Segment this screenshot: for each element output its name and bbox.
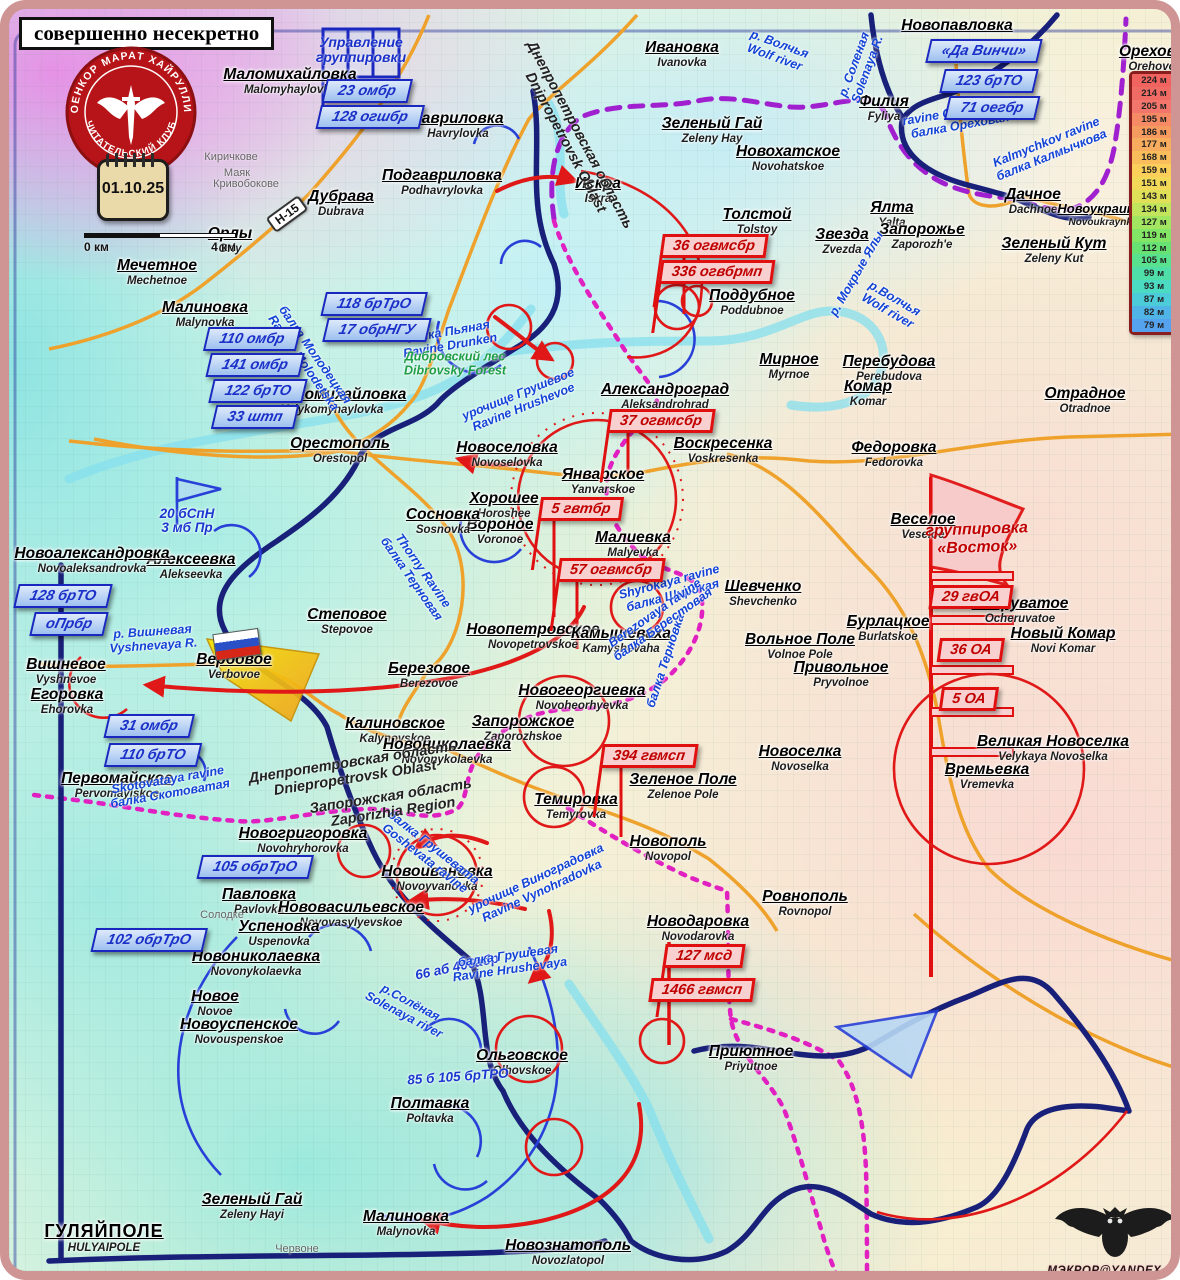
ukrainian-unit-label: 71 оегбр xyxy=(944,96,1040,120)
ukrainian-unit-label: 122 брТО xyxy=(208,379,308,403)
place-translit: Novouspenskoe xyxy=(180,1034,298,1046)
place-translit: Novoheorhyevka xyxy=(518,700,645,712)
place-label: СтеповоеStepovoe xyxy=(307,606,386,636)
elevation-legend-entry: 119 м xyxy=(1132,229,1176,242)
water-feature-label: р.СолёнаяSolenaya river xyxy=(363,977,451,1041)
place-label: МирноеMyrnoe xyxy=(759,351,818,381)
ukrainian-unit-label: 110 омбр xyxy=(203,327,301,351)
place-name: Комар xyxy=(844,378,892,395)
ukrainian-unit-label: 17 обрНГУ xyxy=(322,318,432,342)
elevation-legend-entry: 87 м xyxy=(1132,293,1176,306)
place-name: Ивановка xyxy=(645,39,719,56)
place-translit: Sosnovka xyxy=(406,524,480,536)
place-label: ПривольноеPryvolnoe xyxy=(794,659,889,689)
place-translit: Dachnoe xyxy=(1005,204,1061,216)
place-label: БурлацкоеBurlatskoe xyxy=(847,613,930,643)
place-label: НовоселкаNovoselka xyxy=(759,743,842,773)
place-name: Отрадное xyxy=(1045,385,1126,402)
place-label: ПоддубноеPoddubnoe xyxy=(709,287,795,317)
place-label: ПолтавкаPoltavka xyxy=(391,1095,470,1125)
grouping-line2: «Восток» xyxy=(926,537,1029,558)
calendar-spiral-icon xyxy=(106,153,160,167)
place-name: Филия xyxy=(859,93,909,110)
place-translit: Uspenovka xyxy=(238,936,319,948)
elevation-legend-entry: 112 м xyxy=(1132,242,1176,255)
place-name: Ялта xyxy=(870,199,913,216)
minor-place-label: Червоне xyxy=(275,1243,319,1255)
place-name: Новополь xyxy=(630,833,707,850)
place-translit: Shevchenko xyxy=(725,596,802,608)
russian-unit-label: 36 огвмсбр xyxy=(659,234,768,258)
elevation-legend-entry: 99 м xyxy=(1132,267,1176,280)
place-label: БерезовоеBerezovoe xyxy=(388,660,470,690)
place-name: ГУЛЯЙПОЛЕ xyxy=(44,1221,163,1241)
ukrainian-unit-label: 105 обрТрО xyxy=(196,855,313,879)
place-translit: Novopol xyxy=(630,851,707,863)
place-translit: Voskresenka xyxy=(674,453,773,465)
place-label: ВоскресенкаVoskresenka xyxy=(674,435,773,465)
water-feature-label: р. ВолчьяWolf river xyxy=(744,28,810,74)
place-translit: Novonykolaevka xyxy=(192,966,320,978)
elevation-legend-entry: 205 м xyxy=(1132,100,1176,113)
ukrainian-unit-label: 31 омбр xyxy=(103,714,194,738)
elevation-legend-entry: 186 м xyxy=(1132,126,1176,139)
elevation-legend-entry: 127 м xyxy=(1132,216,1176,229)
place-translit: Ehorovka xyxy=(31,704,104,716)
place-name: Запорожское xyxy=(472,713,574,730)
place-translit: Rovnopol xyxy=(762,906,848,918)
water-feature-label: р.ВолчьяWolf river xyxy=(859,279,922,331)
place-translit: Vremevka xyxy=(945,779,1030,791)
place-label: НоводаровкаNovodarovka xyxy=(647,913,749,943)
russian-unit-label: 36 ОА xyxy=(937,638,1006,662)
place-label: Зеленый ГайZeleny Hay xyxy=(662,115,763,145)
oblast-name-label: Днепропетровская областьDnipropetrovsk O… xyxy=(509,39,635,239)
russian-unit-label: 5 ОА xyxy=(939,687,1000,711)
place-translit: Poltavka xyxy=(391,1113,470,1125)
place-label: Зеленое ПолеZelenoe Pole xyxy=(629,771,736,801)
place-translit: Otradnoe xyxy=(1045,403,1126,415)
place-translit: Orestopol xyxy=(290,453,390,465)
elevation-legend-entry: 93 м xyxy=(1132,280,1176,293)
place-label: НовогеоргиевкаNovoheorhyevka xyxy=(518,682,645,712)
minor-place-label: Киричкове xyxy=(204,151,257,163)
elevation-legend-entry: 105 м xyxy=(1132,254,1176,267)
ukrainian-unit-text: 85 б 105 брТРО xyxy=(407,1066,509,1087)
place-label: РовнопольRovnopol xyxy=(762,888,848,918)
ukrainian-unit-label: 118 брТрО xyxy=(320,292,427,316)
place-name: Новониколаевка xyxy=(192,948,320,965)
place-name: Новоселка xyxy=(759,743,842,760)
place-name: Зеленый Кут xyxy=(1002,235,1107,252)
place-name: Орехово xyxy=(1119,43,1180,60)
place-name: Новоуспенское xyxy=(180,1016,298,1033)
place-translit: Fedorovka xyxy=(852,457,937,469)
place-name: Звезда xyxy=(815,226,868,243)
place-label: ШевченкоShevchenko xyxy=(725,578,802,608)
ukrainian-unit-label: 123 брТО xyxy=(939,69,1039,93)
place-name: Гавриловка xyxy=(412,110,503,127)
place-name: Шевченко xyxy=(725,578,802,595)
place-label: СосновкаSosnovka xyxy=(406,506,480,536)
place-name: Новознатополь xyxy=(505,1237,631,1254)
place-translit: Zeleny Hayi xyxy=(202,1209,303,1221)
labels-layer: МаломихайловкаMalomyhaylovkaГавриловкаHa… xyxy=(9,9,1171,1271)
scale-bar-graphic xyxy=(84,233,236,238)
place-name: Толстой xyxy=(723,206,792,223)
place-name: Воскресенка xyxy=(674,435,773,452)
place-name: Орестополь xyxy=(290,435,390,452)
place-translit: Havrylovka xyxy=(412,128,503,140)
ukrainian-unit-label: «Да Винчи» xyxy=(925,39,1043,63)
place-translit: Priyutnoe xyxy=(709,1061,794,1073)
calendar-date: 01.10.25 xyxy=(100,180,166,198)
minor-place-label: Солодке xyxy=(200,909,244,921)
place-name: Малиновка xyxy=(162,299,248,316)
ukrainian-unit-label: 23 омбр xyxy=(321,79,412,103)
elevation-legend-entry: 224 м xyxy=(1132,74,1176,87)
place-name: Перебудова xyxy=(843,353,936,370)
place-name: Великая Новоселка xyxy=(977,733,1129,750)
place-translit: Dubrava xyxy=(308,206,374,218)
place-name: Запорожье xyxy=(879,221,965,238)
place-label: НовознатопольNovozlatopol xyxy=(505,1237,631,1267)
elevation-legend-entry: 82 м xyxy=(1132,306,1176,319)
place-label: ТемировкаTemyrovka xyxy=(534,791,617,821)
ukrainian-unit-label: 128 брТО xyxy=(13,584,113,608)
elevation-legend-entry: 143 м xyxy=(1132,190,1176,203)
place-name: Зеленый Гай xyxy=(662,115,763,132)
place-name: Федоровка xyxy=(852,439,937,456)
place-label: ГавриловкаHavrylovka xyxy=(412,110,503,140)
place-translit: Berezovoe xyxy=(388,678,470,690)
place-translit: HULYAIPOLE xyxy=(44,1242,163,1254)
place-label: УспеновкаUspenovka xyxy=(238,918,319,948)
place-label: Новопавловка xyxy=(901,17,1013,35)
place-label: Зеленый ГайZeleny Hayi xyxy=(202,1191,303,1221)
place-name: Приютное xyxy=(709,1043,794,1060)
place-translit: Mechetnoe xyxy=(117,275,197,287)
place-name: Привольное xyxy=(794,659,889,676)
map-canvas: МаломихайловкаMalomyhaylovkaГавриловкаHa… xyxy=(0,0,1180,1280)
place-translit: Novohatskoe xyxy=(736,161,840,173)
place-translit: Myrnoe xyxy=(759,369,818,381)
place-translit: Poddubnoe xyxy=(709,305,795,317)
place-name: Успеновка xyxy=(238,918,319,935)
place-translit: Novodarovka xyxy=(647,931,749,943)
place-translit: Novoselka xyxy=(759,761,842,773)
place-name: Новое xyxy=(191,988,239,1005)
place-label: ЗапорожьеZaporozh'e xyxy=(879,221,965,251)
elevation-legend: 224 м214 м205 м195 м186 м177 м168 м159 м… xyxy=(1129,71,1179,335)
place-name: Хорошее xyxy=(469,490,538,507)
place-label: Вольное ПолеVolnoe Pole xyxy=(745,631,855,661)
place-translit: Verbovoe xyxy=(196,669,271,681)
place-label: Новый КомарNovi Komar xyxy=(1011,625,1116,655)
place-translit: Podhavrylovka xyxy=(382,185,502,197)
ukrainian-unit-label: оПрбр xyxy=(29,612,109,636)
hq-unit-line1: Управление xyxy=(316,35,406,50)
elevation-legend-entry: 214 м xyxy=(1132,87,1176,100)
place-label: ПодгавриловкаPodhavrylovka xyxy=(382,167,502,197)
place-translit: Burlatskoe xyxy=(847,631,930,643)
russian-unit-label: 394 гвмсп xyxy=(599,744,698,768)
place-name: Зеленое Поле xyxy=(629,771,736,788)
place-translit: Novohryhorovka xyxy=(239,843,368,855)
water-feature-label: балка ГрушеваяRavine Hrushevaya xyxy=(450,942,568,985)
place-label: КомарKomar xyxy=(844,378,892,408)
russian-unit-label: 336 огвбрмп xyxy=(658,260,776,284)
place-label: НовохатскоеNovohatskoe xyxy=(736,143,840,173)
place-name: Времьевка xyxy=(945,761,1030,778)
place-translit: Malynovka xyxy=(363,1226,449,1238)
date-calendar: 01.10.25 xyxy=(97,159,169,221)
place-label: ВремьевкаVremevka xyxy=(945,761,1030,791)
hq-unit-label: Управление группировки xyxy=(316,35,406,66)
place-translit: Komar xyxy=(844,396,892,408)
place-name: Егоровка xyxy=(31,686,104,703)
grouping-vostok-label: группировка «Восток» xyxy=(925,519,1029,558)
place-translit: Novi Komar xyxy=(1011,643,1116,655)
place-label: ОтрадноеOtradnoe xyxy=(1045,385,1126,415)
place-label: ИвановкаIvanovka xyxy=(645,39,719,69)
place-translit: Pryvolnoe xyxy=(794,677,889,689)
place-label: НовоеNovoe xyxy=(191,988,239,1018)
russian-unit-label: 57 огвмсбр xyxy=(556,558,665,582)
place-translit: Novoselovka xyxy=(456,457,557,469)
ukrainian-unit-label: 102 обрТрО xyxy=(90,928,207,952)
elevation-legend-entry: 79 м xyxy=(1132,319,1176,332)
scale-end-label: 4 км xyxy=(211,240,236,254)
place-label: НовоуспенскоеNovouspenskoe xyxy=(180,1016,298,1046)
place-name: Новоселовка xyxy=(456,439,557,456)
place-name: Новохатское xyxy=(736,143,840,160)
scale-start-label: 0 км xyxy=(84,240,109,254)
place-label: МечетноеMechetnoe xyxy=(117,257,197,287)
place-name: Темировка xyxy=(534,791,617,808)
elevation-legend-entry: 195 м xyxy=(1132,113,1176,126)
russian-unit-label: 1466 гвмсп xyxy=(648,978,755,1002)
place-label: НовопольNovopol xyxy=(630,833,707,863)
elevation-legend-rows: 224 м214 м205 м195 м186 м177 м168 м159 м… xyxy=(1132,74,1176,332)
elevation-legend-entry: 177 м xyxy=(1132,138,1176,151)
elevation-legend-entry: 168 м xyxy=(1132,151,1176,164)
map-scale-bar: 0 км 4 км xyxy=(84,233,236,254)
place-label: ОреховоOrehovo xyxy=(1119,43,1180,73)
place-label: МалиевкаMalyevka xyxy=(595,529,671,559)
place-translit: Zaporozh'e xyxy=(879,239,965,251)
place-name: Вишневое xyxy=(26,656,106,673)
place-label: НовогригоровкаNovohryhorovka xyxy=(239,825,368,855)
place-name: Сосновка xyxy=(406,506,480,523)
place-name: Степовое xyxy=(307,606,386,623)
place-name: Березовое xyxy=(388,660,470,677)
place-translit: Novoaleksandrovka xyxy=(14,563,169,575)
place-label: НовониколаевкаNovonykolaevka xyxy=(192,948,320,978)
place-name: Новый Комар xyxy=(1011,625,1116,642)
place-translit: Zelenoe Pole xyxy=(629,789,736,801)
place-label: НовоалександровкаNovoaleksandrovka xyxy=(14,545,169,575)
place-name: Новодаровка xyxy=(647,913,749,930)
place-name: Новопавловка xyxy=(901,17,1013,34)
place-name: Малиновка xyxy=(363,1208,449,1225)
place-translit: Novozlatopol xyxy=(505,1255,631,1267)
place-name: Мирное xyxy=(759,351,818,368)
place-label: МалиновкаMalynovka xyxy=(363,1208,449,1238)
place-name: Новогеоргиевка xyxy=(518,682,645,699)
ukrainian-unit-label: 141 омбр xyxy=(205,353,304,377)
place-label: ДачноеDachnoe xyxy=(1005,186,1061,216)
place-translit: Ocheruvatoe xyxy=(972,613,1069,625)
place-translit: Vyshnevoe xyxy=(26,674,106,686)
place-translit: Temyrovka xyxy=(534,809,617,821)
place-name: Малиевка xyxy=(595,529,671,546)
russian-unit-label: 127 мсд xyxy=(662,944,745,968)
place-name: Полтавка xyxy=(391,1095,470,1112)
place-translit: Stepovoe xyxy=(307,624,386,636)
place-name: Новоалександровка xyxy=(14,545,169,562)
place-name: Ровнополь xyxy=(762,888,848,905)
place-name: Зеленый Гай xyxy=(202,1191,303,1208)
ukrainian-unit-label: 110 брТО xyxy=(104,743,202,767)
place-label: МалиновкаMalynovka xyxy=(162,299,248,329)
place-label: ГУЛЯЙПОЛЕHULYAIPOLE xyxy=(44,1221,163,1254)
place-label: Великая НовоселкаVelykaya Novoselka xyxy=(977,733,1129,763)
watermark-text: МЭКРОР@YANDEX.RU xyxy=(1047,1265,1180,1277)
place-name: Подгавриловка xyxy=(382,167,502,184)
place-name: Поддубное xyxy=(709,287,795,304)
russian-unit-label: 29 гвОА xyxy=(928,585,1013,609)
place-label: ВишневоеVyshnevoe xyxy=(26,656,106,686)
elevation-legend-entry: 159 м xyxy=(1132,164,1176,177)
place-label: ТолстойTolstoy xyxy=(723,206,792,236)
minor-place-label: Кривобокове xyxy=(213,178,279,190)
water-feature-label: Kalmychkov ravineбалка Калмычкова xyxy=(989,114,1108,183)
place-name: Вольное Поле xyxy=(745,631,855,648)
water-feature-label: Thorny Ravineбалка Терновая xyxy=(378,527,456,623)
place-name: Нововасильевское xyxy=(278,899,424,916)
place-label: Зеленый КутZeleny Kut xyxy=(1002,235,1107,265)
russian-unit-label: 37 огвмсбр xyxy=(606,409,715,433)
ukrainian-unit-label: 33 штп xyxy=(211,405,299,429)
place-name: Мечетное xyxy=(117,257,197,274)
place-name: Дубрава xyxy=(308,188,374,205)
place-label: ДубраваDubrava xyxy=(308,188,374,218)
place-label: ПриютноеPriyutnoe xyxy=(709,1043,794,1073)
place-name: Дачное xyxy=(1005,186,1061,203)
place-label: НовоселовкаNovoselovka xyxy=(456,439,557,469)
place-translit: Yanvarskoe xyxy=(562,484,644,496)
ukrainian-unit-text: 20 бСпН3 мб Пр xyxy=(160,507,215,535)
ukrainian-unit-label: 128 огшбр xyxy=(315,105,424,129)
water-feature-label: Дибровский лесDibrovsky Forest xyxy=(404,351,506,378)
water-feature-label: р. ВишневаяVyshnevaya R. xyxy=(108,622,198,655)
place-name: Ольговское xyxy=(476,1047,568,1064)
russian-unit-label: 5 гвтбр xyxy=(538,497,625,521)
place-name: Калиновское xyxy=(345,715,445,732)
place-label: ОрестопольOrestopol xyxy=(290,435,390,465)
place-translit: Ivanovka xyxy=(645,57,719,69)
elevation-legend-entry: 134 м xyxy=(1132,203,1176,216)
place-translit: Zeleny Kut xyxy=(1002,253,1107,265)
place-name: Александроград xyxy=(601,381,729,398)
place-label: ФедоровкаFedorovka xyxy=(852,439,937,469)
place-label: АлександроградAleksandrohrad xyxy=(601,381,729,411)
place-label: ЕгоровкаEhorovka xyxy=(31,686,104,716)
place-name: Бурлацкое xyxy=(847,613,930,630)
hq-unit-line2: группировки xyxy=(316,50,406,65)
elevation-legend-entry: 151 м xyxy=(1132,177,1176,190)
